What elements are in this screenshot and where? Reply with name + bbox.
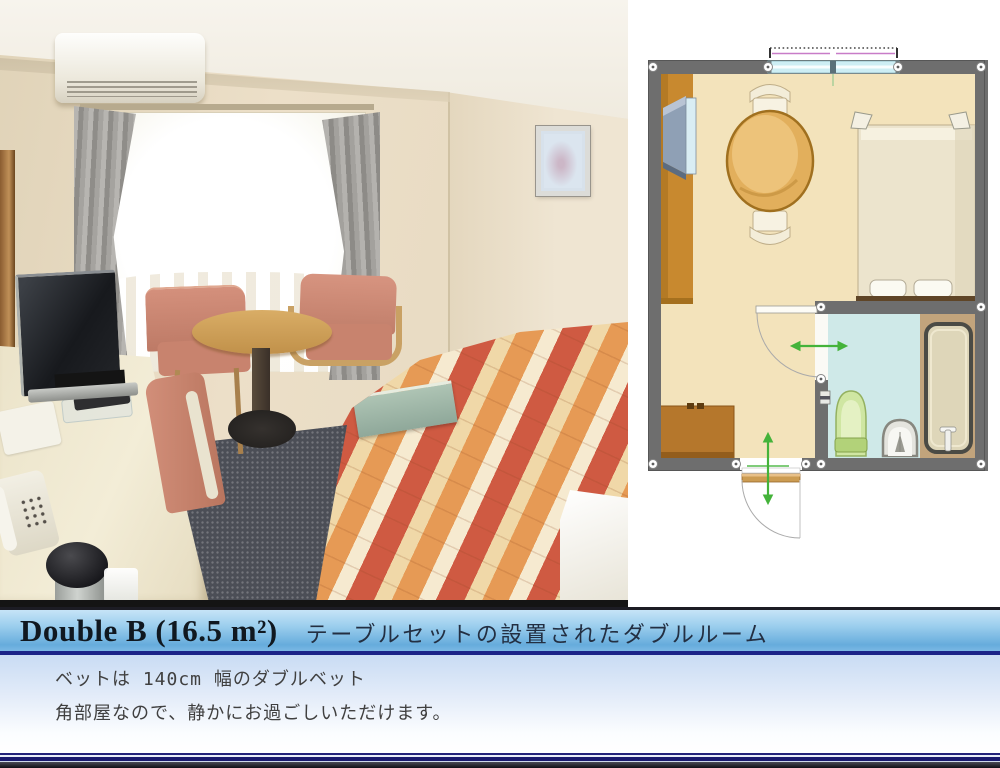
description-line-2: 角部屋なので、静かにお過ごしいただけます。 xyxy=(55,705,1000,723)
electric-kettle xyxy=(46,542,108,588)
air-conditioner xyxy=(55,33,205,103)
bottom-border xyxy=(0,753,1000,768)
floorplan-entry-door xyxy=(742,468,800,538)
floorplan-bathtub xyxy=(926,324,971,452)
telephone-handset xyxy=(0,485,18,552)
page: .scr{fill:#fff;stroke:#878787;stroke-wid… xyxy=(0,0,1000,768)
floorplan-bed xyxy=(856,125,975,305)
air-conditioner-vent xyxy=(67,81,197,97)
floorplan-toilet xyxy=(835,391,867,456)
rule-dark xyxy=(0,762,1000,768)
wall-picture-frame xyxy=(536,126,590,196)
floorplan-cabinet xyxy=(658,403,734,460)
room-title: Double B (16.5 m²) xyxy=(20,613,278,649)
floorplan: .scr{fill:#fff;stroke:#878787;stroke-wid… xyxy=(645,28,990,568)
picture-art xyxy=(544,134,582,188)
description-line-1: ベットは 140cm 幅のダブルベット xyxy=(55,671,1000,689)
table-base xyxy=(228,410,296,448)
floorplan-paper-holder xyxy=(820,391,830,404)
description-panel: ベットは 140cm 幅のダブルベット 角部屋なので、静かにお過ごしいただけます… xyxy=(0,655,1000,753)
room-subtitle-ja: テーブルセットの設置されたダブルルーム xyxy=(306,617,770,649)
floorplan-drawing: .scr{fill:#fff;stroke:#878787;stroke-wid… xyxy=(645,28,990,568)
photo-bottom-edge xyxy=(0,600,628,607)
curtain-rod xyxy=(80,104,374,110)
floorplan-sink xyxy=(883,420,917,456)
telephone-keypad xyxy=(18,494,49,529)
floorplan-tv xyxy=(663,96,696,180)
room-photo xyxy=(0,0,628,607)
bed-sheet xyxy=(560,490,628,607)
title-banner: Double B (16.5 m²) テーブルセットの設置されたダブルルーム xyxy=(0,607,1000,655)
floorplan-table xyxy=(727,111,813,211)
